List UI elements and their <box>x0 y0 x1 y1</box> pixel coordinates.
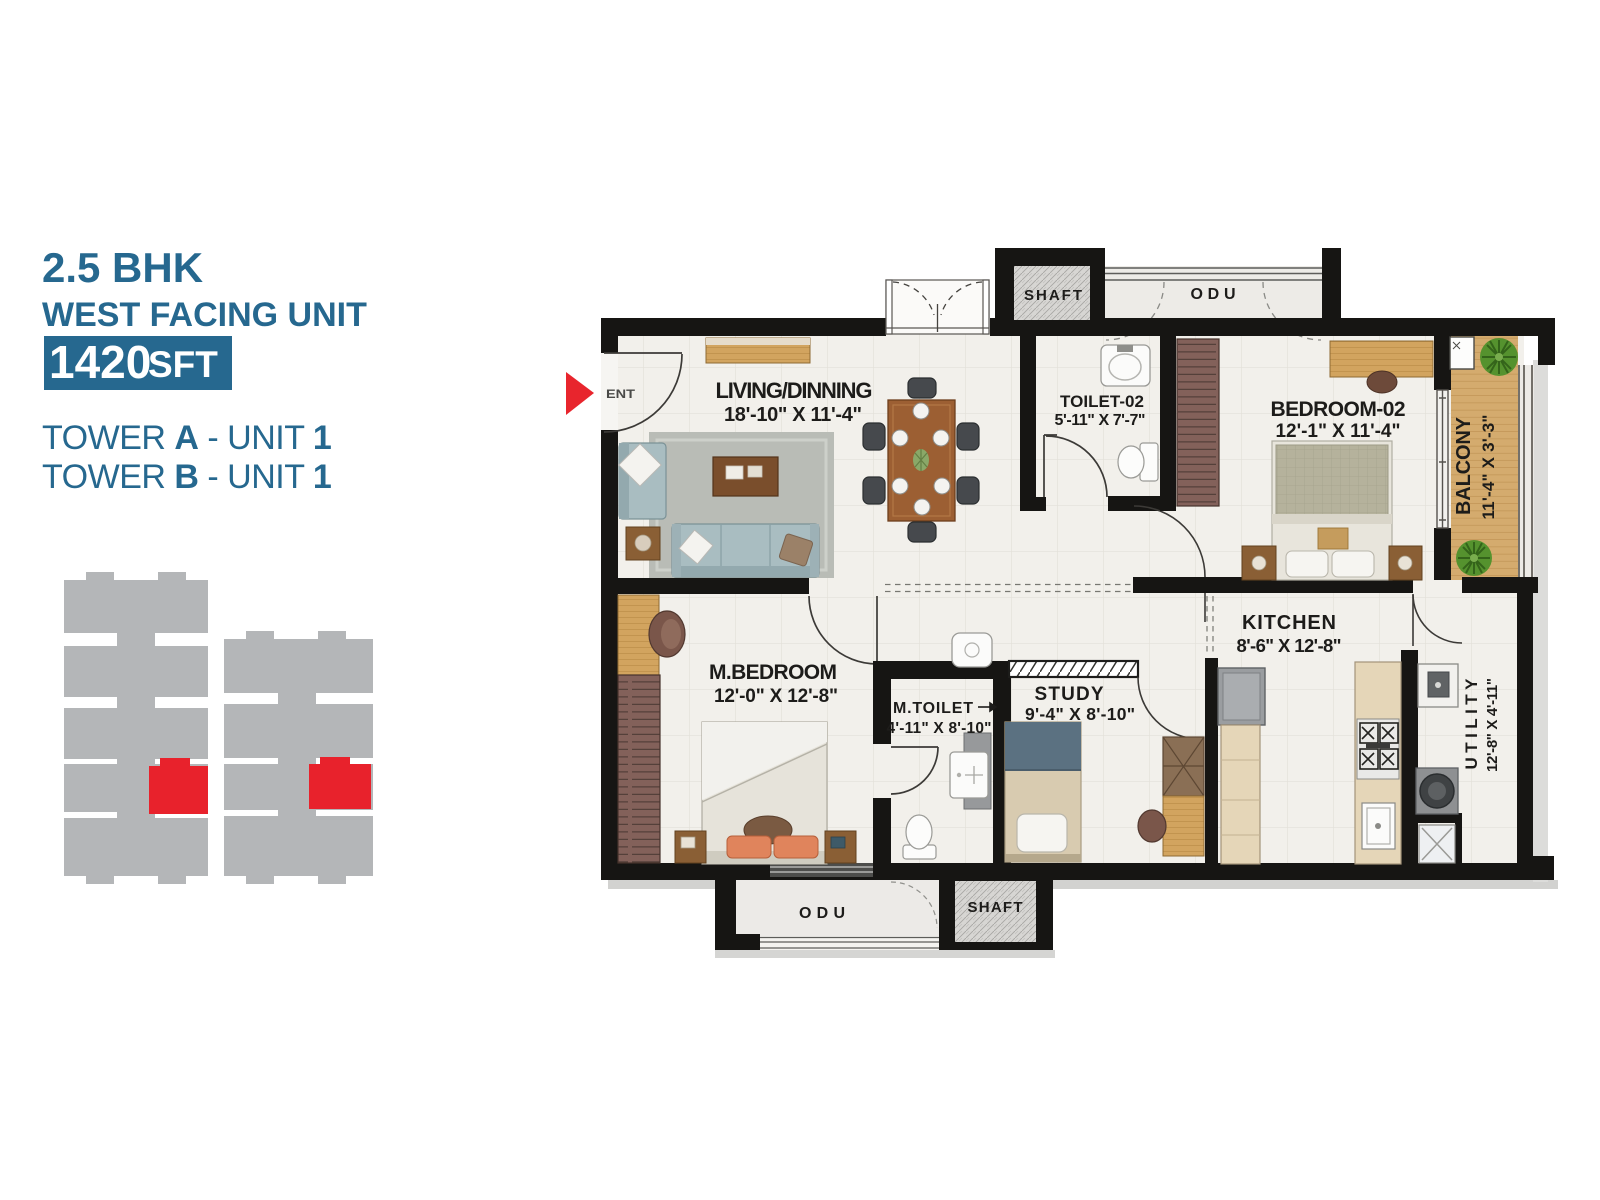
svg-text:4'-11" X 8'-10": 4'-11" X 8'-10" <box>887 720 992 737</box>
svg-text:BALCONY: BALCONY <box>1453 416 1475 515</box>
svg-text:M.BEDROOM: M.BEDROOM <box>709 661 837 684</box>
svg-text:9'-4" X 8'-10": 9'-4" X 8'-10" <box>1025 704 1135 724</box>
svg-text:M.TOILET: M.TOILET <box>893 700 973 717</box>
svg-text:SHAFT: SHAFT <box>968 899 1023 916</box>
svg-text:LIVING/DINNING: LIVING/DINNING <box>716 378 873 403</box>
svg-text:STUDY: STUDY <box>1035 684 1104 705</box>
svg-text:5'-11" X 7'-7": 5'-11" X 7'-7" <box>1055 412 1146 429</box>
svg-text:ENT: ENT <box>606 387 636 401</box>
svg-text:12'-8" X 4'-11": 12'-8" X 4'-11" <box>1484 678 1501 772</box>
svg-text:BEDROOM-02: BEDROOM-02 <box>1271 398 1406 421</box>
svg-text:12'-1" X 11'-4": 12'-1" X 11'-4" <box>1276 421 1401 442</box>
svg-text:11'-4" X 3'-3": 11'-4" X 3'-3" <box>1479 415 1498 520</box>
svg-text:SHAFT: SHAFT <box>1024 287 1082 304</box>
svg-text:KITCHEN: KITCHEN <box>1242 612 1336 634</box>
svg-text:TOILET-02: TOILET-02 <box>1060 392 1144 411</box>
svg-text:ODU: ODU <box>799 905 845 922</box>
svg-text:ODU: ODU <box>1191 286 1236 303</box>
svg-text:8'-6" X 12'-8": 8'-6" X 12'-8" <box>1237 635 1342 656</box>
svg-text:18'-10" X 11'-4": 18'-10" X 11'-4" <box>724 404 862 426</box>
svg-text:12'-0" X 12'-8": 12'-0" X 12'-8" <box>714 686 838 707</box>
